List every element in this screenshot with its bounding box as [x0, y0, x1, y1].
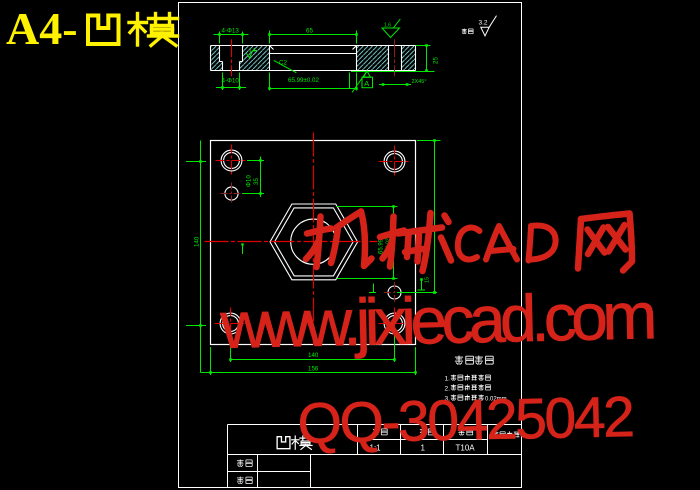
- svg-text:25: 25: [433, 57, 440, 64]
- svg-text:www.jixiecad.com: www.jixiecad.com: [219, 278, 654, 362]
- svg-text:1.6: 1.6: [384, 23, 391, 29]
- svg-text:QQ-30425042: QQ-30425042: [297, 385, 633, 456]
- svg-text:140: 140: [194, 236, 201, 247]
- svg-text:3.2: 3.2: [479, 20, 488, 27]
- svg-text:4-Φ10: 4-Φ10: [222, 77, 240, 84]
- svg-text:15: 15: [425, 277, 431, 283]
- svg-text:A4-: A4-: [6, 3, 78, 54]
- svg-text:4-Φ13: 4-Φ13: [222, 27, 240, 34]
- svg-text:65: 65: [306, 27, 313, 34]
- svg-text:1.6: 1.6: [249, 48, 256, 54]
- svg-text:156: 156: [308, 365, 319, 372]
- svg-text:C2: C2: [279, 60, 287, 67]
- svg-text:A: A: [364, 79, 369, 88]
- svg-text:35: 35: [253, 177, 260, 185]
- svg-text:65.99±0.02: 65.99±0.02: [288, 77, 319, 84]
- svg-text:Φ10: Φ10: [246, 175, 253, 187]
- svg-text:1.: 1.: [445, 376, 451, 383]
- svg-text:2X45°: 2X45°: [412, 79, 427, 85]
